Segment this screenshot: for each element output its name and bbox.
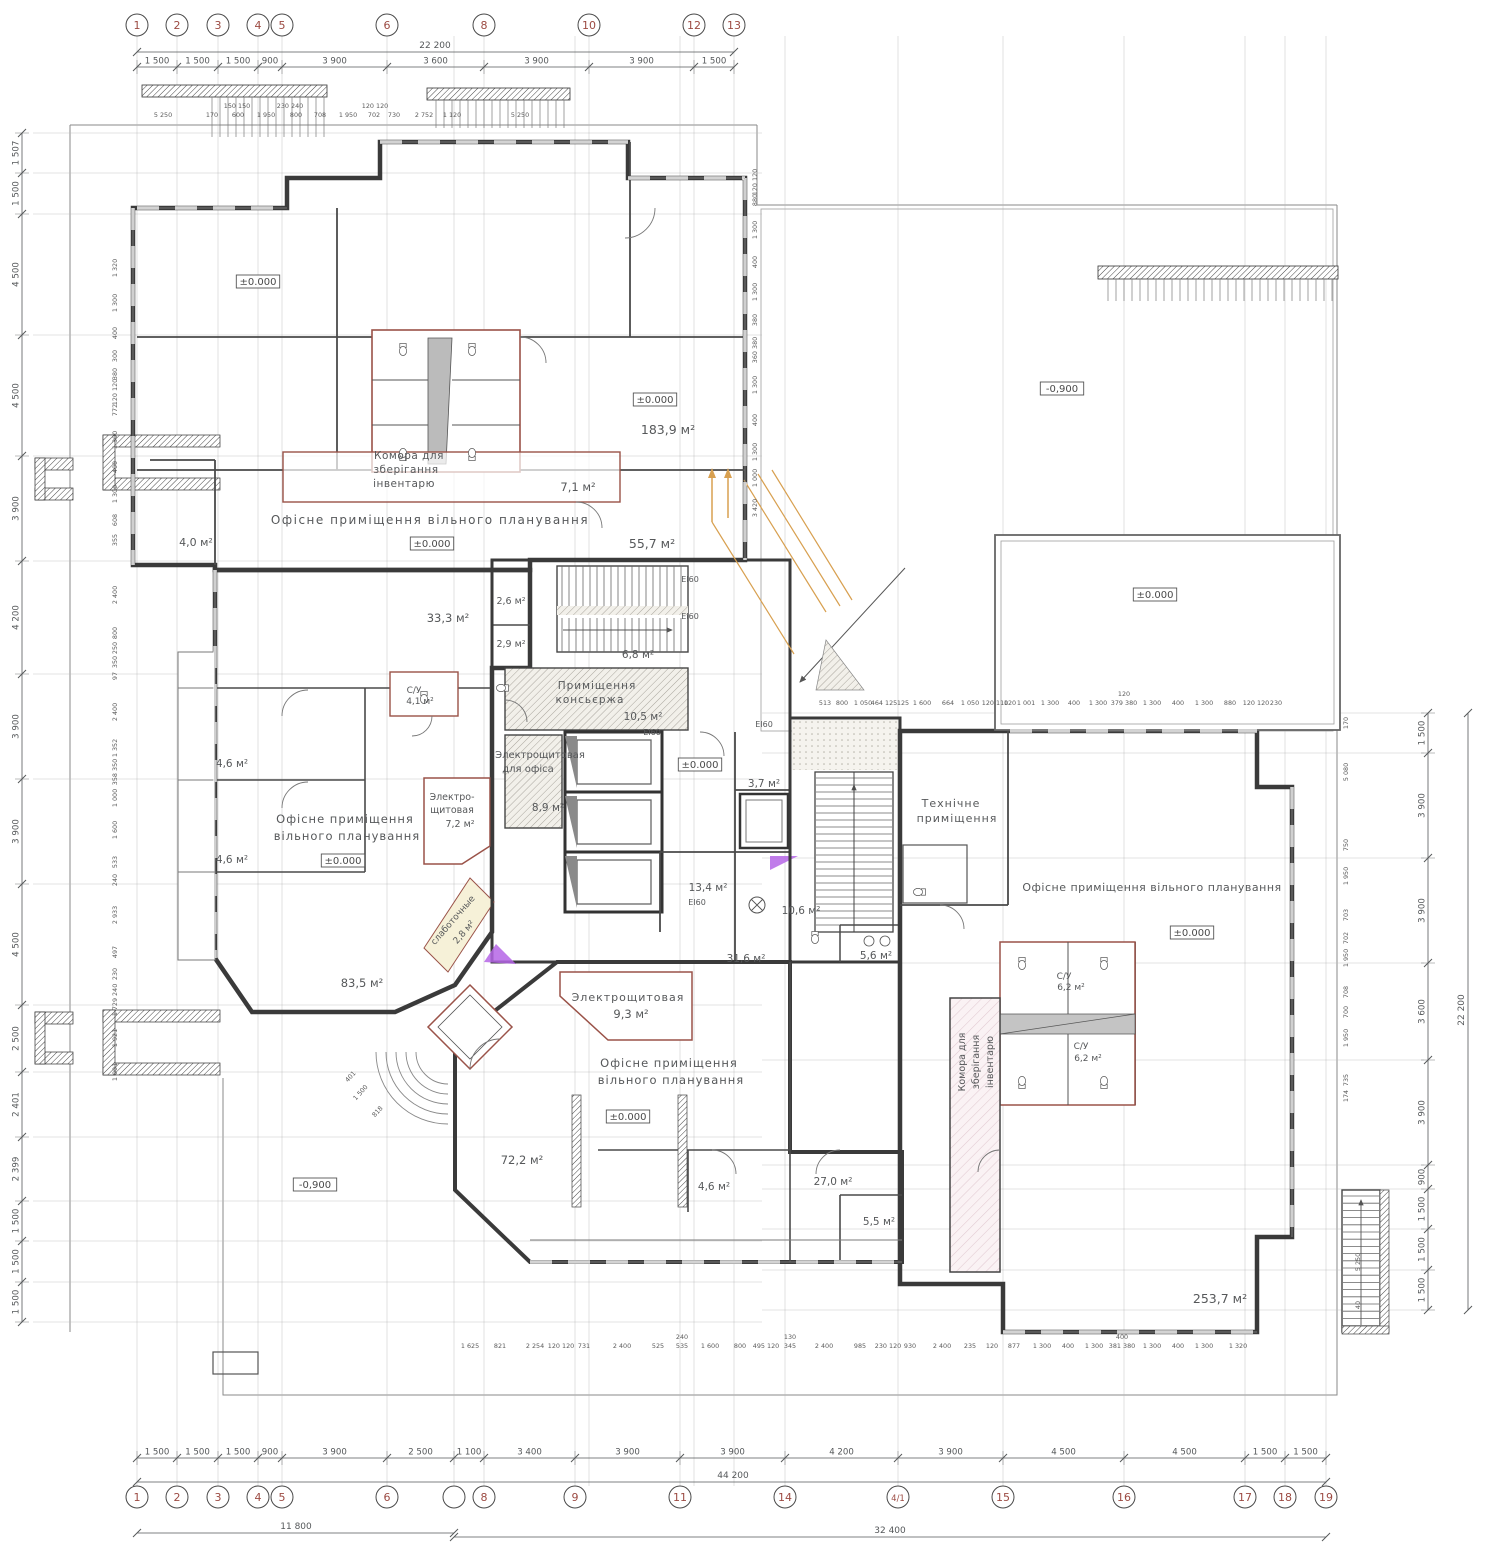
detail-dim: 120 120 <box>751 169 759 195</box>
detail-dim: 1 300 <box>111 485 119 503</box>
detail-dim: 1 921 <box>111 1029 119 1047</box>
detail-dim: 664 <box>942 699 954 707</box>
dim-label: 4 500 <box>1172 1448 1197 1458</box>
detail-dim: 1 001 <box>111 1063 119 1081</box>
detail-dim: 702 <box>1342 932 1350 944</box>
room-label: 9,3 м² <box>613 1007 648 1021</box>
detail-dim: 700 <box>1342 1006 1350 1018</box>
toilet-fixture <box>468 448 475 460</box>
elevator-car <box>577 800 651 844</box>
dim-label: 1 500 <box>12 1209 22 1234</box>
detail-dim: 1 300 <box>1195 1342 1213 1350</box>
detail-dim: 5 250 <box>1354 1253 1362 1271</box>
room-label: С/У <box>1057 972 1072 982</box>
detail-dim: 750 <box>1342 839 1350 851</box>
detail-dim: 125 <box>897 699 909 707</box>
room-label: 31,6 м² <box>727 953 766 965</box>
detail-dim: 731 <box>578 1342 590 1350</box>
detail-dim: 735 <box>1342 1074 1350 1086</box>
axis-number: 5 <box>279 1491 286 1504</box>
room-label: 6,8 м² <box>622 649 654 661</box>
detail-dim: 240 <box>111 874 119 886</box>
dim-label: 1 500 <box>226 57 251 67</box>
axis-number: 14 <box>778 1491 792 1504</box>
toilet-fixture <box>468 344 475 356</box>
room-label: 55,7 м² <box>629 536 675 551</box>
detail-dim: 821 <box>494 1342 506 1350</box>
detail-dim: 380 <box>111 368 119 380</box>
axis-number: 1 <box>134 1491 141 1504</box>
fire-rating-label: ЕІ60 <box>681 575 699 584</box>
detail-dim: 120 120 <box>1243 699 1269 707</box>
room-label: Электро- <box>429 792 474 803</box>
detail-dim: 1 320 <box>1229 1342 1247 1350</box>
electrical-room-s <box>560 972 692 1040</box>
detail-dim: 97 <box>111 672 119 680</box>
dim-label: 1 500 <box>12 181 22 206</box>
dim-label: 1 500 <box>1418 1237 1428 1262</box>
detail-dim: 380 <box>751 314 759 326</box>
dim-label: 3 900 <box>629 57 654 67</box>
toilet-fixture <box>811 932 818 944</box>
room-label: 4,6 м² <box>698 1181 730 1193</box>
detail-dim: 2 400 <box>613 1342 631 1350</box>
detail-dim: 5 080 <box>1342 763 1350 781</box>
detail-dim: 3 420 <box>751 499 759 517</box>
room-label: 183,9 м² <box>641 422 695 437</box>
toilet-fixture <box>1100 958 1107 970</box>
dim-label: 1 500 <box>702 57 727 67</box>
room-label: Электрощитовая <box>572 991 685 1004</box>
detail-dim: 1 950 <box>1342 867 1350 885</box>
detail-dim: 730 <box>388 111 400 119</box>
axis-number: 18 <box>1278 1491 1292 1504</box>
detail-dim: 400 <box>751 256 759 268</box>
dim-label: 3 600 <box>423 57 448 67</box>
wc-tech <box>903 845 967 903</box>
room-label: консьєржа <box>556 694 625 706</box>
room-label: Комора для <box>374 450 444 462</box>
level-mark: ±0.000 <box>413 539 450 550</box>
dim-label: 1 500 <box>1418 1197 1428 1222</box>
detail-dim: 400 <box>111 327 119 339</box>
detail-dim: 2 400 <box>815 1342 833 1350</box>
toilet-fixture <box>496 684 508 691</box>
axis-number: 1 <box>134 19 141 32</box>
room-label: С/У <box>1074 1042 1089 1052</box>
room-label: Электрощитовая <box>495 750 585 761</box>
detail-dim: 401 <box>343 1069 357 1083</box>
detail-dim: 379 380 <box>1111 699 1137 707</box>
room-label: зберігання <box>373 464 438 476</box>
fire-rating-label: ЕІ60 <box>755 720 773 729</box>
dim-label: 3 900 <box>322 1448 347 1458</box>
detail-dim: 230 120 <box>875 1342 901 1350</box>
floor-plan-sheet: { "meta": {"title": "Ground floor plan —… <box>0 0 1500 1547</box>
dim-label: 1 500 <box>185 57 210 67</box>
detail-dim: 1 300 <box>1085 1342 1103 1350</box>
room-label: щитовая <box>430 805 474 816</box>
detail-dim: 1 300 <box>1143 1342 1161 1350</box>
fire-rating-label: ЕІ60 <box>688 898 706 907</box>
level-mark: ±0.000 <box>636 395 673 406</box>
dim-right-overall: 22 200 <box>1457 994 1467 1026</box>
room-label: 4,1 м² <box>406 697 434 707</box>
room-label: 4,6 м² <box>216 758 248 770</box>
detail-dim: 235 <box>964 1342 976 1350</box>
dim-top-overall: 22 200 <box>419 41 451 51</box>
level-mark: ±0.000 <box>324 856 361 867</box>
toilet-fixture <box>1100 1076 1107 1088</box>
detail-dim: 1 600 <box>701 1342 719 1350</box>
detail-dim: 5 250 <box>154 111 172 119</box>
detail-dim: 985 <box>854 1342 866 1350</box>
detail-dim: 880 <box>751 194 759 206</box>
dim-label: 1 500 <box>145 1448 170 1458</box>
detail-dim: 1 300 <box>751 376 759 394</box>
detail-dim: 1 320 <box>111 259 119 277</box>
detail-dim: 120 <box>1118 690 1130 698</box>
room-label: Комора для <box>957 1033 968 1092</box>
dim-span-left: 11 800 <box>280 1522 312 1532</box>
axis-number: 6 <box>384 19 391 32</box>
dim-label: 2 500 <box>12 1026 22 1051</box>
stair-external-east <box>1342 1190 1389 1334</box>
dim-label: 1 500 <box>185 1448 210 1458</box>
toilet-fixture <box>1018 1076 1025 1088</box>
detail-dim: 772 <box>111 404 119 416</box>
room-label: Офісне приміщення <box>276 812 414 826</box>
dim-label: 3 400 <box>517 1448 542 1458</box>
dim-label: 1 500 <box>12 1290 22 1315</box>
bay-windows-w <box>178 652 215 960</box>
elevator-car <box>577 860 651 904</box>
room-label: 5,6 м² <box>860 950 892 962</box>
detail-dim: 400 <box>1172 699 1184 707</box>
axis-number: 12 <box>687 19 701 32</box>
room-label: 2,9 м² <box>496 639 525 650</box>
detail-dim: 533 <box>111 856 119 868</box>
detail-dim: 120 <box>986 1342 998 1350</box>
detail-dim: 1 300 <box>1195 699 1213 707</box>
room-label: Приміщення <box>558 680 637 692</box>
dim-label: 900 <box>1418 1169 1428 1185</box>
dim-label: 4 500 <box>12 262 22 287</box>
detail-dim: 1 000 <box>751 469 759 487</box>
detail-dim: 2 400 <box>111 703 119 721</box>
dim-label: 3 900 <box>12 714 22 739</box>
detail-dim: 513 <box>819 699 831 707</box>
dim-span-right: 32 400 <box>874 1526 906 1536</box>
dim-label: 900 <box>262 57 278 67</box>
electrical-room-office <box>505 735 562 828</box>
dim-label: 900 <box>262 1448 278 1458</box>
dim-label: 3 900 <box>524 57 549 67</box>
detail-dim: 1 950 <box>257 111 275 119</box>
toilet-fixture <box>1018 958 1025 970</box>
room-label: С/У <box>407 686 422 696</box>
detail-dim: 1 000 <box>111 789 119 807</box>
zone-office-nw <box>133 142 745 570</box>
low-current-corridor <box>424 878 494 972</box>
room-label: 6,2 м² <box>1057 983 1085 993</box>
detail-dim: 525 <box>652 1342 664 1350</box>
wall-stub <box>678 1095 687 1207</box>
detail-dim: 400 <box>111 461 119 473</box>
detail-dim: 1 120 <box>443 111 461 119</box>
room-label: 2,6 м² <box>496 596 525 607</box>
dim-label: 1 500 <box>145 57 170 67</box>
dim-label: 1 500 <box>1293 1448 1318 1458</box>
toilet-fixture <box>913 888 925 895</box>
detail-dim: 708 <box>314 111 326 119</box>
dim-label: 3 900 <box>720 1448 745 1458</box>
room-label: 27,0 м² <box>814 1176 853 1188</box>
detail-dim: 1 300 <box>1041 699 1059 707</box>
level-mark: ±0.000 <box>1136 590 1173 601</box>
axis-number: 19 <box>1319 1491 1333 1504</box>
window-openings <box>133 142 1292 1332</box>
fire-rating-label: ЕІ60 <box>681 612 699 621</box>
dim-label: 2 399 <box>12 1157 22 1182</box>
detail-dim: 40 <box>1354 1301 1362 1309</box>
level-mark: ±0.000 <box>1173 928 1210 939</box>
detail-dim: 2 933 <box>111 906 119 924</box>
room-label: Технічне <box>921 797 981 810</box>
detail-dim: 497 <box>111 946 119 958</box>
dim-label: 2 500 <box>408 1448 433 1458</box>
detail-dim: 150 150 <box>224 102 250 110</box>
detail-dim: 800 <box>836 699 848 707</box>
room-label: 7,1 м² <box>560 480 595 494</box>
detail-dim: 708 <box>1342 986 1350 998</box>
axis-number: 10 <box>582 19 596 32</box>
axis-number: 8 <box>481 1491 488 1504</box>
level-mark: -0,900 <box>1046 384 1078 395</box>
detail-dim: 355 <box>111 534 119 546</box>
detail-dim: 170 <box>206 111 218 119</box>
wall-stub <box>572 1095 581 1207</box>
room-label: 13,4 м² <box>689 882 728 894</box>
detail-dim: 1 600 <box>913 699 931 707</box>
dim-label: 2 401 <box>12 1092 22 1117</box>
detail-dim: 702 <box>368 111 380 119</box>
dim-bottom-overall: 44 200 <box>717 1471 749 1481</box>
room-label: 33,3 м² <box>427 611 470 625</box>
room-label: Офісне приміщення вільного планування <box>1022 881 1281 894</box>
detail-dim: 250 <box>111 642 119 654</box>
room-label: 5,5 м² <box>863 1216 895 1228</box>
dim-label: 3 900 <box>322 57 347 67</box>
room-label: 4,6 м² <box>216 854 248 866</box>
detail-dim: 120 120 <box>111 379 119 405</box>
axis-number: 16 <box>1117 1491 1131 1504</box>
axis-number: 5 <box>279 19 286 32</box>
axis-number: 15 <box>996 1491 1010 1504</box>
detail-dim: 230 <box>1270 699 1282 707</box>
detail-dim: 120 120 <box>548 1342 574 1350</box>
detail-dim: 358 350 <box>111 759 119 785</box>
dim-label: 1 100 <box>457 1448 482 1458</box>
detail-dim: 608 <box>111 514 119 526</box>
axis-number: 4 <box>255 1491 262 1504</box>
detail-dim: 400 <box>1172 1342 1184 1350</box>
dim-label: 4 500 <box>12 932 22 957</box>
room-label: приміщення <box>917 812 998 825</box>
axis-number: 3 <box>215 1491 222 1504</box>
detail-dim: 400 <box>1116 1333 1128 1341</box>
dim-label: 1 500 <box>1418 1278 1428 1303</box>
dim-label: 3 900 <box>938 1448 963 1458</box>
sink <box>880 936 890 946</box>
detail-dim: 800 <box>734 1342 746 1350</box>
detail-dim: 800 <box>111 627 119 639</box>
room-label: 4,0 м² <box>179 536 213 549</box>
detail-dim: 1 001 <box>1017 699 1035 707</box>
detail-dim: 360 380 <box>751 337 759 363</box>
detail-dim: 350 <box>111 656 119 668</box>
room-label: інвентарю <box>985 1036 996 1088</box>
room-label: Офісне приміщення вільного планування <box>271 513 589 527</box>
stair-block-east <box>790 718 900 962</box>
room-label: 6,2 м² <box>1074 1054 1102 1064</box>
room-label: 72,2 м² <box>501 1153 544 1167</box>
dim-label: 4 500 <box>12 383 22 408</box>
dim-label: 1 500 <box>226 1448 251 1458</box>
level-mark: -0,900 <box>299 1180 331 1191</box>
detail-dim: 1 300 <box>1089 699 1107 707</box>
detail-dim: 1 300 <box>111 431 119 449</box>
detail-dim: 345 <box>784 1342 796 1350</box>
entrance-vestibule <box>428 985 512 1069</box>
detail-dim: 174 <box>1342 1090 1350 1102</box>
sink <box>864 936 874 946</box>
detail-dim: 2 400 <box>111 586 119 604</box>
dim-label: 1 500 <box>12 1249 22 1274</box>
axis-number: 4/1 <box>891 1494 905 1504</box>
room-label: для офіса <box>502 763 554 775</box>
room-label: вільного планування <box>274 829 420 843</box>
detail-dim: 1 300 <box>1143 699 1161 707</box>
detail-dim: 381 380 <box>1109 1342 1135 1350</box>
axis-bubble-bottom-blank <box>443 1486 465 1508</box>
detail-dim: 230 <box>111 968 119 980</box>
fire-rating-label: ЕІ60 <box>643 728 661 737</box>
room-label: 253,7 м² <box>1193 1291 1247 1306</box>
detail-dim: 2 752 <box>415 111 433 119</box>
detail-dim: 1 300 <box>111 294 119 312</box>
axis-number: 4 <box>255 19 262 32</box>
room-label: Офісне приміщення <box>600 1056 738 1070</box>
room-label: 8,9 м² <box>532 802 564 814</box>
detail-dim: 877 <box>1008 1342 1020 1350</box>
axis-bubbles: 12345681012131234568911144/11516171819 <box>126 14 1337 1508</box>
dim-label: 3 900 <box>1418 898 1428 923</box>
detail-dim: 2 254 <box>526 1342 544 1350</box>
detail-dim: 1 352 <box>111 739 119 757</box>
detail-dim: 170 <box>1342 717 1350 729</box>
toilet-fixture <box>399 344 406 356</box>
room-label: 83,5 м² <box>341 976 384 990</box>
room-label: 10,6 м² <box>782 905 821 917</box>
axis-number: 6 <box>384 1491 391 1504</box>
detail-dim: 400 <box>1062 1342 1074 1350</box>
purple-door-wedge <box>484 944 516 964</box>
storage-room-nw <box>283 452 620 502</box>
detail-dim: 1 950 <box>1342 1029 1350 1047</box>
dim-label: 1 500 <box>1253 1448 1278 1458</box>
detail-dim: 1 500 <box>351 1083 369 1102</box>
room-label: вільного планування <box>598 1073 744 1087</box>
detail-dim: 1 729 240 <box>111 984 119 1017</box>
detail-dim: 800 <box>290 111 302 119</box>
entrance-ramp <box>708 468 905 690</box>
axis-number: 17 <box>1238 1491 1252 1504</box>
detail-dim: 120 <box>1004 699 1016 707</box>
elevator-car <box>577 740 651 784</box>
dim-label: 4 200 <box>829 1448 854 1458</box>
detail-dim: 400 <box>1068 699 1080 707</box>
detail-dim: 930 <box>904 1342 916 1350</box>
detail-dim: 880 <box>1224 699 1236 707</box>
room-label: зберігання <box>971 1035 982 1089</box>
axis-number: 11 <box>673 1491 687 1504</box>
detail-dim: 300 <box>111 350 119 362</box>
detail-dim: 1 600 <box>111 821 119 839</box>
detail-dim: 495 120 <box>753 1342 779 1350</box>
dim-label: 4 200 <box>12 605 22 630</box>
detail-dim: 1 300 <box>751 221 759 239</box>
detail-dim: 1 300 <box>751 443 759 461</box>
level-mark: ±0.000 <box>681 760 718 771</box>
level-mark: ±0.000 <box>609 1112 646 1123</box>
dim-label: 3 600 <box>1418 999 1428 1024</box>
retaining-walls <box>35 435 258 1374</box>
axis-number: 2 <box>174 1491 181 1504</box>
axis-number: 13 <box>727 19 741 32</box>
detail-dim: 130 <box>784 1333 796 1341</box>
detail-dim: 2 400 <box>933 1342 951 1350</box>
dim-label: 3 900 <box>1418 793 1428 818</box>
room-label: 3,7 м² <box>748 778 780 790</box>
detail-dim: 1 950 <box>339 111 357 119</box>
zone-office-w <box>178 570 530 1012</box>
detail-dim: 464 125 <box>871 699 897 707</box>
detail-dim: 1 950 <box>1342 949 1350 967</box>
level-mark: ±0.000 <box>239 277 276 288</box>
detail-dim: 400 <box>751 414 759 426</box>
dim-label: 3 900 <box>1418 1100 1428 1125</box>
room-label: 7,2 м² <box>445 819 474 830</box>
detail-dim: 120 120 <box>362 102 388 110</box>
dim-label: 4 500 <box>1051 1448 1076 1458</box>
axis-number: 8 <box>481 19 488 32</box>
purple-door-wedge <box>770 856 798 870</box>
detail-dim: 535 <box>676 1342 688 1350</box>
detail-dim: 1 300 <box>1033 1342 1051 1350</box>
axis-number: 2 <box>174 19 181 32</box>
axis-number: 3 <box>215 19 222 32</box>
dim-label: 1 507 <box>12 141 22 166</box>
detail-dim: 230 240 <box>277 102 303 110</box>
dim-label: 3 900 <box>12 819 22 844</box>
window-mullion-fringe <box>1102 279 1338 301</box>
axis-number: 9 <box>572 1491 579 1504</box>
room-label: інвентарю <box>373 478 435 490</box>
detail-dim: 1 050 <box>961 699 979 707</box>
dim-label: 3 900 <box>12 496 22 521</box>
detail-dim: 703 <box>1342 909 1350 921</box>
